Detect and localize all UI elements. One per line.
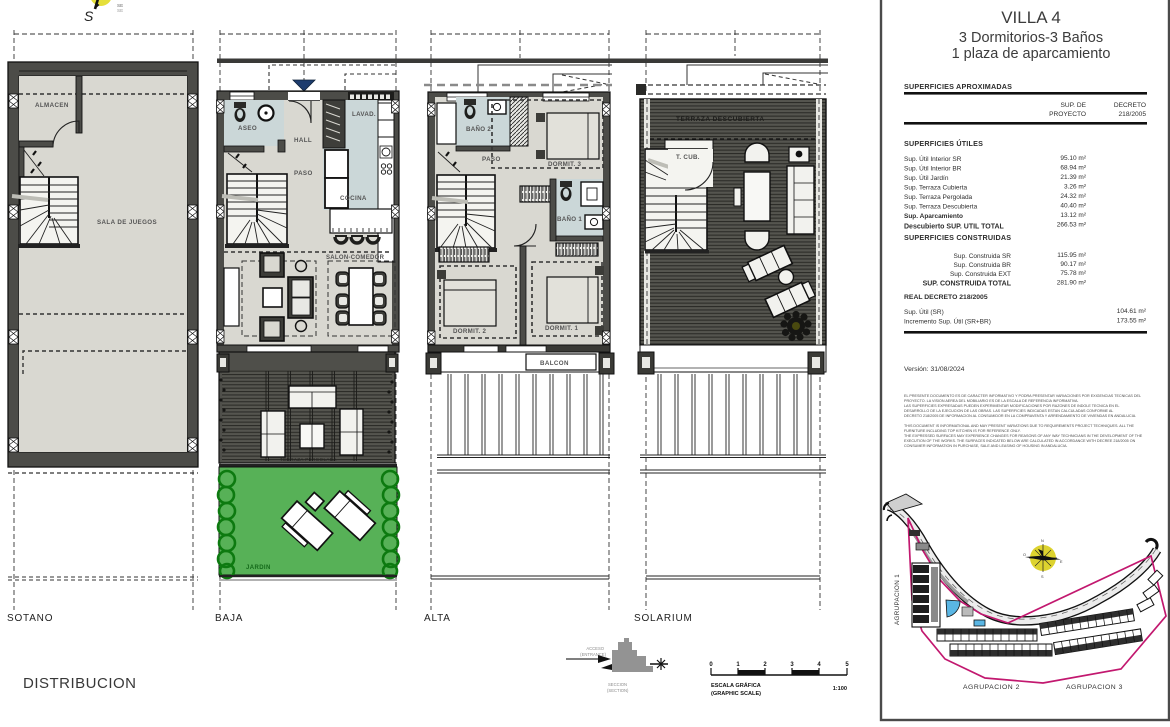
- svg-text:PROYECTO. LA VISION AEREA DEL: PROYECTO. LA VISION AEREA DEL MOBILIARIO…: [904, 399, 1078, 403]
- svg-text:13.12 m²: 13.12 m²: [1060, 212, 1086, 219]
- svg-text:EXECUTION OF THE WORKS. THE SU: EXECUTION OF THE WORKS. THE SURFACES IND…: [904, 439, 1136, 443]
- svg-text:115.95 m²: 115.95 m²: [1057, 252, 1087, 259]
- svg-text:Sup. Útil Interior SR: Sup. Útil Interior SR: [904, 154, 962, 163]
- svg-text:SALA DE JUEGOS: SALA DE JUEGOS: [97, 219, 157, 226]
- svg-text:Versión: 31/08/2024: Versión: 31/08/2024: [904, 366, 965, 373]
- svg-text:SALON-COMEDOR: SALON-COMEDOR: [326, 255, 385, 261]
- svg-text:218/2005: 218/2005: [1118, 111, 1146, 118]
- svg-text:AGRUPACION 1: AGRUPACION 1: [894, 574, 901, 625]
- svg-text:1:100: 1:100: [833, 686, 847, 692]
- svg-text:SUPERFICIES ÚTILES: SUPERFICIES ÚTILES: [904, 139, 983, 148]
- svg-text:3.26 m²: 3.26 m²: [1064, 184, 1087, 191]
- svg-text:Sup. Construida BR: Sup. Construida BR: [954, 262, 1012, 269]
- svg-text:PASO: PASO: [294, 170, 313, 177]
- svg-text:DISTRIBUCION: DISTRIBUCION: [23, 675, 137, 692]
- svg-text:173.55 m²: 173.55 m²: [1117, 318, 1147, 325]
- svg-text:Sup. Útil Jardín: Sup. Útil Jardín: [904, 173, 949, 182]
- svg-text:(SECTION): (SECTION): [607, 688, 629, 693]
- svg-text:ALTA: ALTA: [424, 613, 451, 624]
- svg-text:1 plaza de aparcamiento: 1 plaza de aparcamiento: [952, 46, 1111, 62]
- svg-text:PROYECTO: PROYECTO: [1049, 111, 1086, 118]
- svg-text:Sup. Terraza Descubierta: Sup. Terraza Descubierta: [904, 204, 978, 211]
- svg-text:Sup. Aparcamiento: Sup. Aparcamiento: [904, 213, 963, 220]
- svg-text:AGRUPACION 2: AGRUPACION 2: [963, 684, 1020, 691]
- svg-text:281.90 m²: 281.90 m²: [1057, 280, 1087, 287]
- svg-text:TERRAZA DESCUBIERTA: TERRAZA DESCUBIERTA: [676, 116, 765, 123]
- svg-text:95.10 m²: 95.10 m²: [1060, 155, 1086, 162]
- svg-text:ESCALA GRÁFICA: ESCALA GRÁFICA: [711, 682, 761, 689]
- svg-text:T. CUB.: T. CUB.: [676, 154, 700, 161]
- svg-text:75.78 m²: 75.78 m²: [1060, 270, 1086, 277]
- svg-text:Sup. Útil Interior BR: Sup. Útil Interior BR: [904, 164, 962, 173]
- svg-text:SOLARIUM: SOLARIUM: [634, 613, 693, 624]
- svg-text:266.53 m²: 266.53 m²: [1057, 222, 1087, 229]
- svg-text:TERRAZA PERGOLADA: TERRAZA PERGOLADA: [280, 457, 337, 462]
- svg-text:90.17 m²: 90.17 m²: [1060, 261, 1086, 268]
- svg-text:SUPERFICIES APROXIMADAS: SUPERFICIES APROXIMADAS: [904, 82, 1012, 91]
- svg-text:DORMIT. 1: DORMIT. 1: [545, 325, 579, 332]
- svg-text:ACCESO: ACCESO: [586, 646, 604, 651]
- svg-text:THE EXPRESSED SURFACES MAY EXP: THE EXPRESSED SURFACES MAY EXPERIENCE CH…: [904, 434, 1143, 438]
- svg-text:DORMIT. 2: DORMIT. 2: [453, 328, 487, 335]
- svg-text:S: S: [84, 8, 94, 24]
- svg-text:SUP. CONSTRUIDA TOTAL: SUP. CONSTRUIDA TOTAL: [923, 281, 1012, 288]
- svg-text:JARDIN: JARDIN: [246, 565, 271, 571]
- svg-text:BALCON: BALCON: [540, 360, 569, 367]
- svg-text:SE: SE: [117, 8, 123, 13]
- svg-text:DORMIT. 3: DORMIT. 3: [548, 161, 582, 168]
- svg-text:ASEO: ASEO: [238, 125, 257, 132]
- svg-text:FURNITURE INCLUDING TOP KITCHE: FURNITURE INCLUDING TOP KITCHEN IS FOR R…: [904, 429, 1021, 433]
- svg-text:Sup. Construida EXT: Sup. Construida EXT: [950, 271, 1011, 278]
- svg-text:Incremento Sup. Útil (SR+BR): Incremento Sup. Útil (SR+BR): [904, 317, 991, 326]
- svg-text:SECCION: SECCION: [608, 682, 627, 687]
- svg-text:21.39 m²: 21.39 m²: [1060, 174, 1086, 181]
- svg-text:EL PRESENTE DOCUMENTO ES DE CA: EL PRESENTE DOCUMENTO ES DE CARACTER INF…: [904, 394, 1141, 398]
- svg-text:68.94 m²: 68.94 m²: [1060, 165, 1086, 172]
- svg-text:CONSUMER INFORMATION IN PURCHA: CONSUMER INFORMATION IN PURCHASE, SALE A…: [904, 444, 1067, 448]
- svg-text:REAL DECRETO 218/2005: REAL DECRETO 218/2005: [904, 294, 988, 301]
- svg-text:HALL: HALL: [294, 137, 312, 144]
- svg-text:DECRETO 218/2005 DE INFORMACIO: DECRETO 218/2005 DE INFORMACION AL CONSU…: [904, 414, 1136, 418]
- svg-text:Sup. Terraza Cubierta: Sup. Terraza Cubierta: [904, 185, 967, 192]
- svg-text:(ENTRANCE): (ENTRANCE): [580, 652, 606, 657]
- svg-text:AGRUPACION 3: AGRUPACION 3: [1066, 684, 1123, 691]
- svg-text:ALMACEN: ALMACEN: [35, 102, 69, 109]
- svg-text:DECRETO: DECRETO: [1114, 102, 1146, 109]
- svg-text:SUP. DE: SUP. DE: [1060, 102, 1086, 109]
- svg-text:Sup. Terraza Pergolada: Sup. Terraza Pergolada: [904, 194, 973, 201]
- svg-text:Descubierto SUP. UTIL TOTAL: Descubierto SUP. UTIL TOTAL: [904, 224, 1005, 231]
- svg-text:SOTANO: SOTANO: [7, 613, 53, 624]
- svg-text:40.40 m²: 40.40 m²: [1060, 203, 1086, 210]
- svg-text:BAÑO 1: BAÑO 1: [557, 216, 582, 223]
- svg-text:N: N: [1041, 539, 1044, 543]
- svg-text:Sup. Útil (SR): Sup. Útil (SR): [904, 307, 944, 316]
- svg-text:SUPERFICIES CONSTRUIDAS: SUPERFICIES CONSTRUIDAS: [904, 233, 1011, 242]
- svg-text:DESARROLLO DE LA EJECUCION DE: DESARROLLO DE LA EJECUCION DE LAS OBRAS.…: [904, 409, 1113, 413]
- svg-text:LAVAD.: LAVAD.: [352, 111, 376, 118]
- svg-text:(GRAPHIC SCALE): (GRAPHIC SCALE): [711, 691, 761, 697]
- svg-text:Sup. Construida SR: Sup. Construida SR: [954, 253, 1012, 260]
- svg-text:LAS SUPERFICIES EXPRESADAS PUE: LAS SUPERFICIES EXPRESADAS PUEDEN EXPERI…: [904, 404, 1119, 408]
- svg-text:COCINA: COCINA: [340, 195, 367, 202]
- svg-text:O: O: [1023, 553, 1026, 557]
- svg-text:THIS DOCUMENT IS INFORMATIONAL: THIS DOCUMENT IS INFORMATIONAL AND MAY P…: [904, 424, 1135, 428]
- svg-text:24.32 m²: 24.32 m²: [1060, 193, 1086, 200]
- svg-text:BAJA: BAJA: [215, 613, 243, 624]
- svg-text:VILLA 4: VILLA 4: [1001, 8, 1061, 27]
- svg-text:PASO: PASO: [482, 156, 501, 163]
- svg-text:104.61 m²: 104.61 m²: [1117, 308, 1147, 315]
- svg-text:BAÑO 2: BAÑO 2: [466, 126, 491, 133]
- svg-text:3 Dormitorios-3 Baños: 3 Dormitorios-3 Baños: [959, 30, 1103, 46]
